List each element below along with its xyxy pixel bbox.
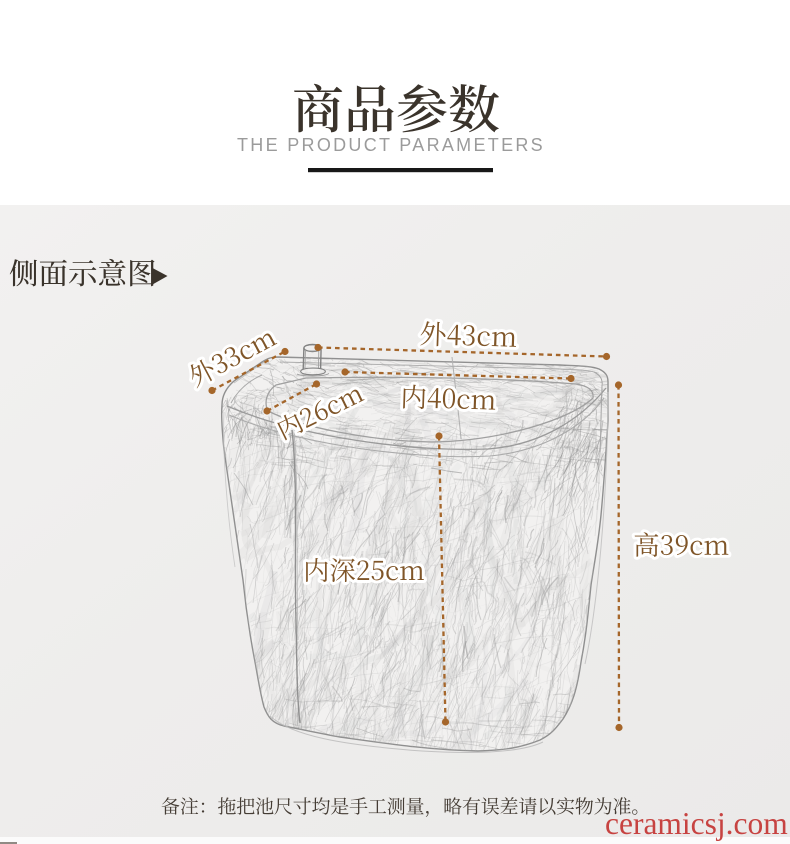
svg-text:ceramicsj.com: ceramicsj.com (605, 806, 788, 841)
svg-text:THE PRODUCT PARAMETERS: THE PRODUCT PARAMETERS (237, 135, 545, 155)
